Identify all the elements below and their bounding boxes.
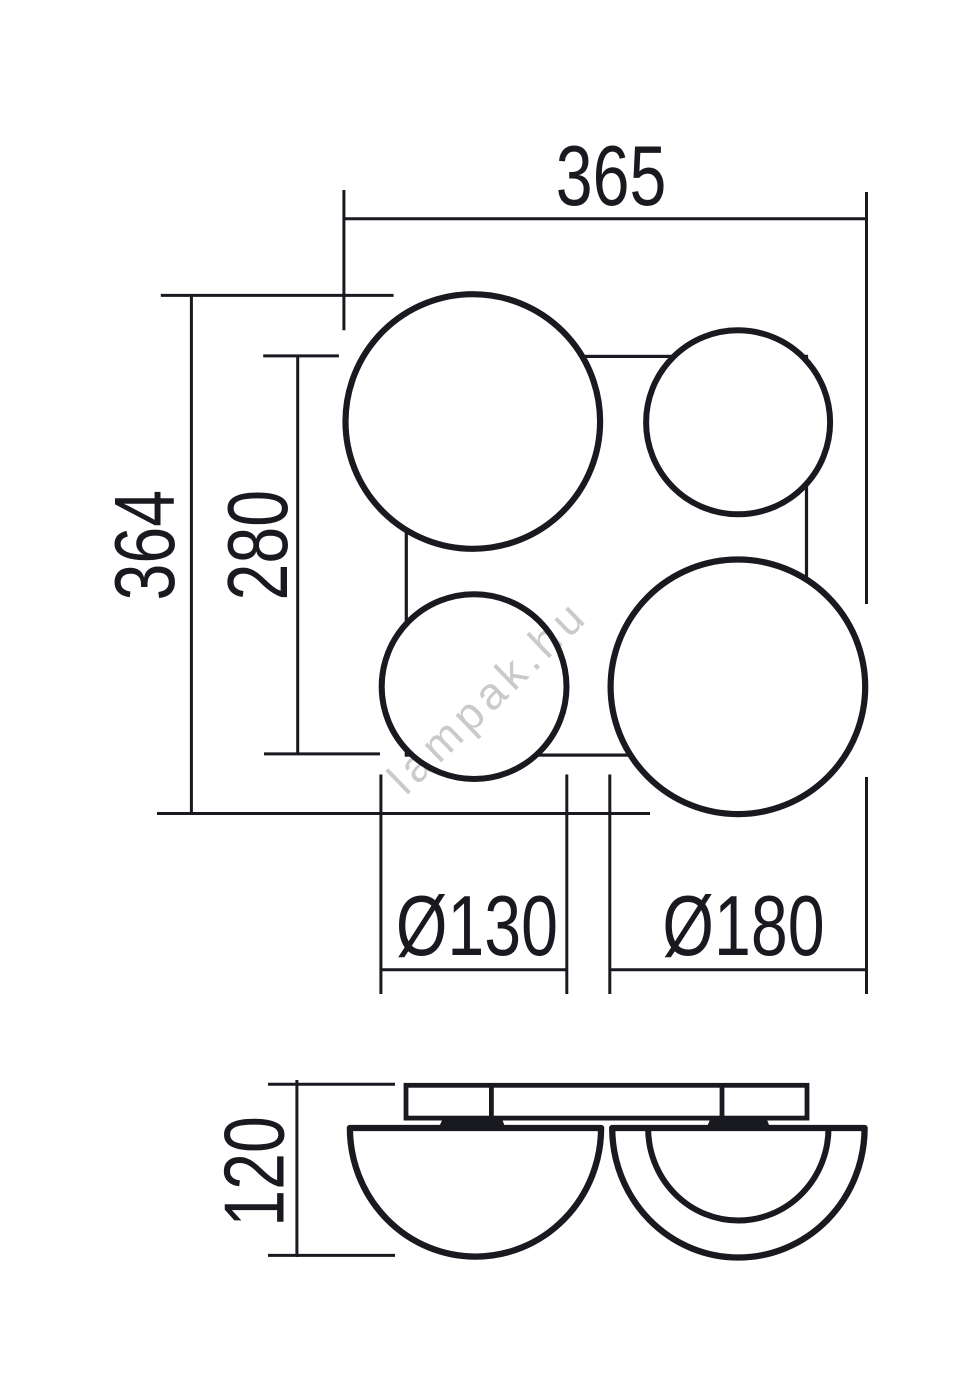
svg-text:120: 120 bbox=[208, 1116, 303, 1227]
svg-text:Ø130: Ø130 bbox=[396, 879, 558, 974]
svg-text:280: 280 bbox=[211, 490, 306, 601]
svg-text:Ø180: Ø180 bbox=[662, 879, 824, 974]
svg-text:364: 364 bbox=[98, 490, 193, 601]
svg-text:365: 365 bbox=[556, 129, 667, 224]
